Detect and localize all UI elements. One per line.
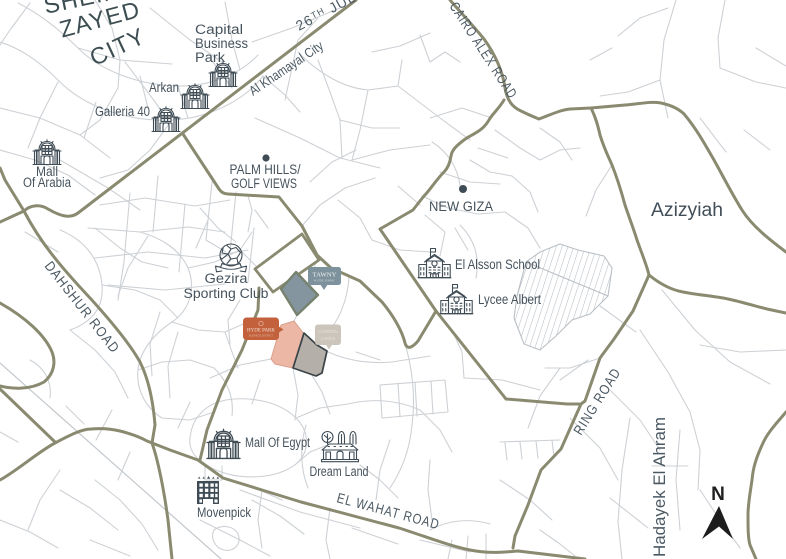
svg-text:Azizyiah: Azizyiah [651,200,723,221]
svg-text:Business: Business [195,36,248,51]
svg-text:Gezira: Gezira [205,271,249,286]
svg-text:Dream Land: Dream Land [310,464,369,479]
svg-text:Park: Park [195,50,225,65]
svg-text:HYDE PARK: HYDE PARK [314,279,335,283]
svg-text:Lycee Albert: Lycee Albert [478,292,541,307]
svg-text:Galleria 40: Galleria 40 [95,104,150,119]
svg-text:N: N [711,484,725,505]
svg-text:GARDEN: GARDEN [318,329,337,334]
svg-text:NEW GIZA: NEW GIZA [429,199,493,214]
svg-text:Movenpick: Movenpick [197,505,251,520]
svg-text:Arkan: Arkan [149,80,179,95]
svg-text:GOLF VIEWS: GOLF VIEWS [231,176,297,191]
svg-text:El Alsson School: El Alsson School [455,257,540,272]
svg-text:Mall Of Egypt: Mall Of Egypt [245,435,310,450]
svg-text:Hadayek El Ahram: Hadayek El Ahram [651,417,669,557]
svg-text:BUSINESS DISTRICT: BUSINESS DISTRICT [249,334,273,338]
svg-text:PALM HILLS/: PALM HILLS/ [230,162,301,177]
svg-text:LAKES: LAKES [321,336,336,341]
svg-text:Of Arabia: Of Arabia [23,175,71,190]
svg-text:TAWNY: TAWNY [313,272,338,279]
svg-text:Capital: Capital [195,22,243,37]
svg-text:Sporting Club: Sporting Club [184,286,269,301]
